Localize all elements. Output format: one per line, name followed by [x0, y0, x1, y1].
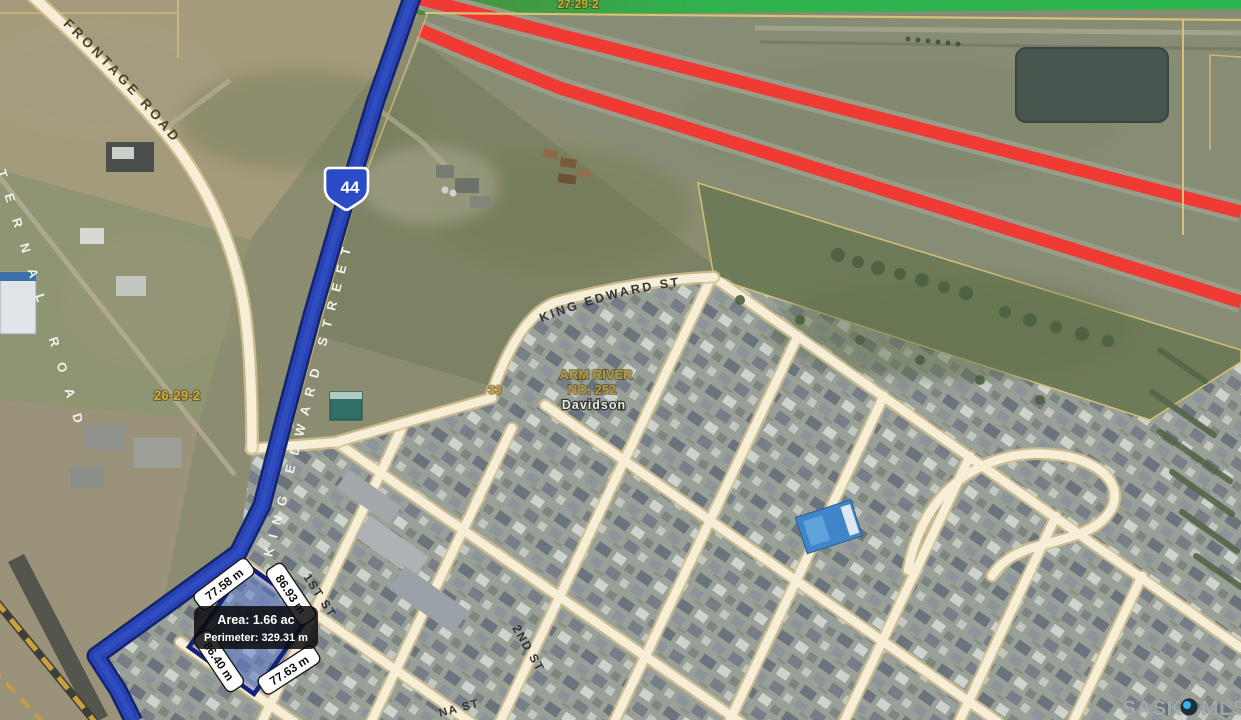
watermark-registered: ®: [1233, 693, 1240, 703]
aerial-map[interactable]: FRONTAGE ROAD TERNAL ROAD KING EDWARD ST…: [0, 0, 1241, 720]
map-viewport[interactable]: FRONTAGE ROAD TERNAL ROAD KING EDWARD ST…: [0, 0, 1241, 720]
lot-33-label: 33: [488, 383, 502, 397]
shield-number: 44: [341, 178, 360, 197]
tooltip-area: Area: 1.66 ac: [217, 613, 294, 627]
saskmls-watermark: SASK MLS ®: [1122, 693, 1241, 720]
pond: [1016, 48, 1168, 122]
section-26-29-2-label: 26-29-2: [154, 388, 201, 403]
parcel-tooltip: Area: 1.66 ac Perimeter: 329.31 m: [194, 606, 318, 649]
town-name-label: Davidson: [562, 398, 626, 412]
watermark-sask: SASK: [1122, 697, 1182, 720]
tooltip-perimeter: Perimeter: 329.31 m: [204, 632, 308, 644]
section-27-29-2-label: 27-29-2: [557, 0, 599, 11]
rm-name-label: ARM RIVER: [560, 367, 634, 382]
rm-number-label: NO. 252: [568, 382, 616, 397]
